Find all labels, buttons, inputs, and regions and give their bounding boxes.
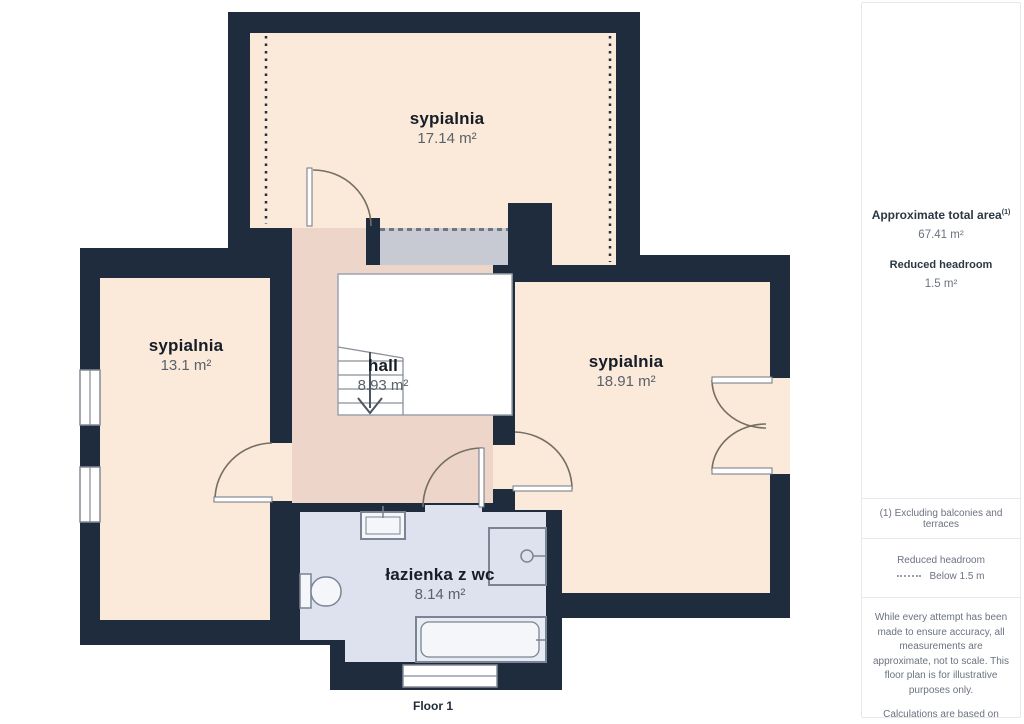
- bathtub-icon: [416, 617, 546, 662]
- footnote-text: (1) Excluding balconies and terraces: [862, 508, 1020, 530]
- legend-title: Reduced headroom: [897, 555, 985, 566]
- bathroom-door-threshold: [425, 505, 482, 514]
- disclaimer-section: While every attempt has been made to ens…: [862, 597, 1020, 724]
- bedroom-right-door-recess: [770, 378, 790, 474]
- reduced-headroom-label: Reduced headroom: [862, 259, 1020, 271]
- bedroom-left-floor: [100, 278, 270, 620]
- legend-row: Below 1.5 m: [897, 571, 984, 582]
- stairwell: [338, 274, 512, 415]
- toilet-icon: [300, 574, 341, 608]
- reduced-headroom-block: [380, 228, 508, 265]
- legend-section: Reduced headroom Below 1.5 m: [862, 538, 1020, 597]
- center-stub-wall: [508, 203, 552, 265]
- footnote-marker: (1): [1002, 209, 1011, 216]
- footnote-section: (1) Excluding balconies and terraces: [862, 498, 1020, 538]
- disclaimer-text-2: Calculations are based on RICS IPMS 3C s…: [872, 708, 1010, 724]
- disclaimer-text-1: While every attempt has been made to ens…: [872, 611, 1010, 698]
- window-bottom: [403, 665, 497, 687]
- floor-plan-svg: [0, 0, 864, 724]
- total-area-label: Approximate total area(1): [862, 208, 1020, 222]
- bedroom-left-door-threshold: [270, 443, 292, 501]
- area-summary-section: Approximate total area(1) 67.41 m² Reduc…: [862, 3, 1020, 498]
- window-left-2: [80, 467, 100, 522]
- total-area-value: 67.41 m²: [862, 229, 1020, 241]
- dotted-line-icon: [897, 575, 921, 577]
- window-left-1: [80, 370, 100, 425]
- floor-plan-page: sypialnia 17.14 m² sypialnia 13.1 m² syp…: [0, 0, 1024, 724]
- reduced-headroom-value: 1.5 m²: [862, 278, 1020, 290]
- door-stub-wall: [366, 218, 380, 265]
- legend-item-label: Below 1.5 m: [929, 571, 984, 582]
- info-sidebar: Approximate total area(1) 67.41 m² Reduc…: [861, 2, 1021, 718]
- floor-label: Floor 1: [413, 699, 453, 713]
- bedroom-right-door-threshold: [493, 445, 515, 489]
